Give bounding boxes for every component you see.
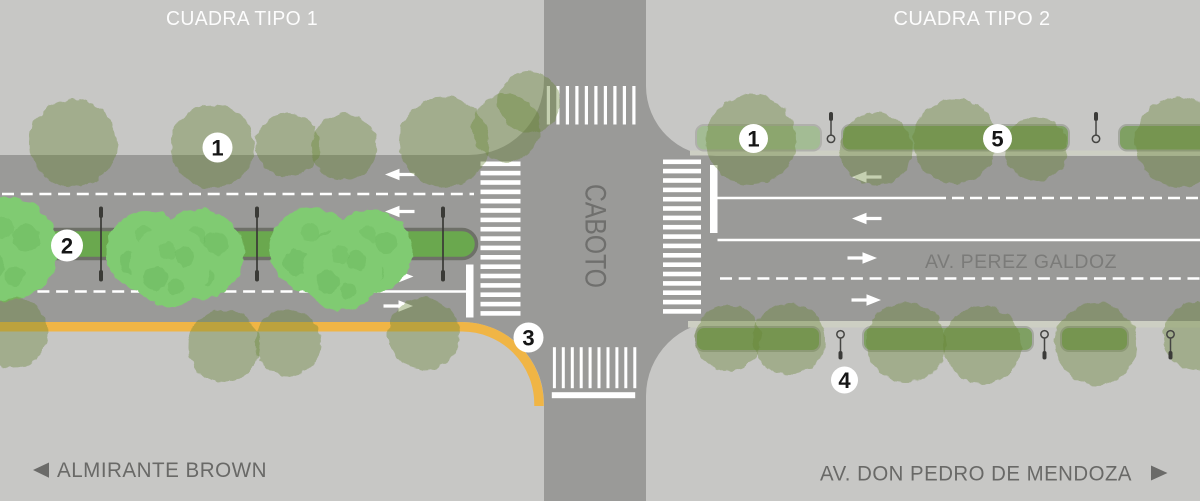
svg-text:CUADRA TIPO 2: CUADRA TIPO 2	[894, 7, 1051, 30]
svg-text:CABOTO: CABOTO	[579, 184, 612, 288]
svg-text:CUADRA TIPO 1: CUADRA TIPO 1	[166, 7, 318, 30]
svg-text:1: 1	[747, 126, 759, 151]
svg-text:2: 2	[61, 233, 73, 258]
svg-text:1: 1	[211, 135, 223, 160]
svg-text:4: 4	[838, 368, 851, 393]
svg-text:ALMIRANTE BROWN: ALMIRANTE BROWN	[57, 459, 267, 482]
svg-text:5: 5	[991, 126, 1003, 151]
svg-text:AV. DON PEDRO DE MENDOZA: AV. DON PEDRO DE MENDOZA	[820, 463, 1132, 486]
svg-text:3: 3	[522, 325, 534, 350]
svg-text:AV. PEREZ GALDOZ: AV. PEREZ GALDOZ	[925, 252, 1117, 273]
